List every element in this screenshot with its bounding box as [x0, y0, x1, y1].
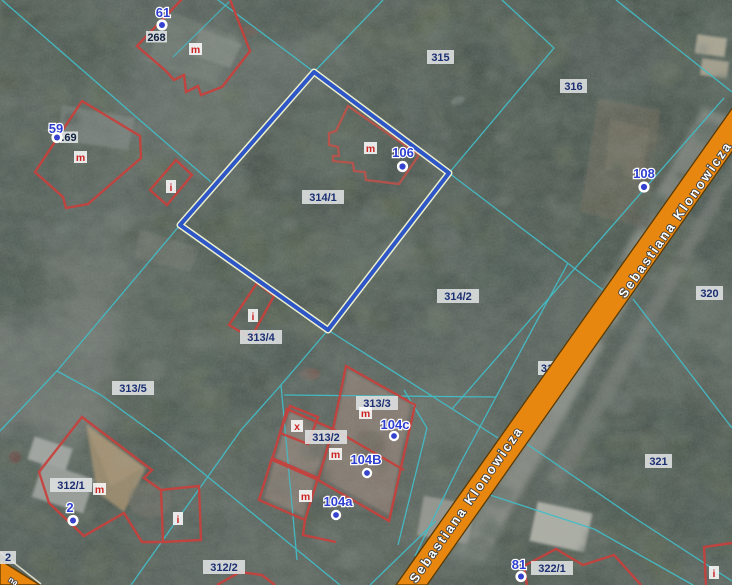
svg-text:315: 315 [431, 52, 449, 64]
svg-text:104B: 104B [350, 452, 381, 467]
svg-text:2: 2 [5, 552, 11, 564]
svg-text:m: m [366, 143, 375, 155]
svg-text:322/1: 322/1 [538, 563, 566, 575]
svg-text:313/2: 313/2 [312, 432, 340, 444]
svg-text:314/1: 314/1 [309, 192, 337, 204]
svg-text:312/2: 312/2 [210, 562, 238, 574]
svg-text:61: 61 [156, 5, 170, 20]
svg-text:i: i [177, 514, 180, 526]
svg-text:320: 320 [700, 288, 718, 300]
svg-text:m: m [331, 449, 340, 461]
svg-text:268: 268 [147, 32, 165, 44]
svg-text:.69: .69 [61, 132, 76, 144]
svg-text:m: m [95, 484, 104, 496]
svg-text:m: m [301, 491, 310, 503]
svg-text:i: i [713, 568, 716, 580]
svg-text:2: 2 [66, 500, 73, 515]
svg-text:316: 316 [564, 81, 582, 93]
svg-text:106: 106 [392, 145, 414, 160]
svg-text:321: 321 [649, 456, 667, 468]
svg-text:m: m [76, 152, 85, 164]
svg-text:104a: 104a [324, 494, 354, 509]
svg-text:x: x [294, 421, 300, 433]
svg-text:m: m [361, 408, 370, 420]
svg-text:m: m [191, 44, 200, 56]
svg-text:104c: 104c [381, 417, 410, 432]
svg-text:108: 108 [633, 166, 655, 181]
svg-text:313/4: 313/4 [247, 332, 275, 344]
svg-text:i: i [170, 182, 173, 194]
svg-text:314/2: 314/2 [444, 291, 472, 303]
svg-text:312/1: 312/1 [57, 480, 85, 492]
svg-text:313/5: 313/5 [119, 383, 147, 395]
svg-text:i: i [252, 311, 255, 323]
svg-text:81: 81 [512, 557, 526, 572]
